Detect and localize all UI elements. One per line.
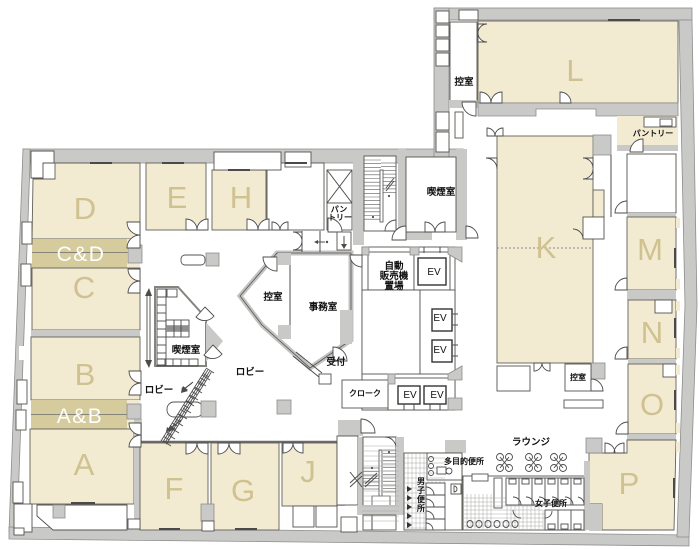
svg-text:M: M [637,232,663,267]
svg-text:H: H [230,180,252,215]
svg-text:ラウンジ: ラウンジ [512,437,551,448]
svg-text:ロビー: ロビー [145,384,174,396]
svg-text:男: 男 [417,477,425,486]
svg-text:A&B: A&B [57,405,104,428]
svg-text:D: D [74,191,96,226]
svg-text:トリー: トリー [328,213,352,222]
svg-text:EV: EV [433,345,447,356]
svg-text:EV: EV [403,390,417,401]
svg-text:控室: 控室 [263,291,283,303]
svg-text:所: 所 [416,503,425,513]
svg-text:EV: EV [430,390,444,401]
svg-text:控室: 控室 [570,372,586,382]
svg-text:パントリー: パントリー [633,128,673,138]
svg-text:J: J [300,454,316,489]
svg-text:喫煙室: 喫煙室 [427,186,456,198]
svg-text:置場: 置場 [384,280,404,292]
svg-text:C&D: C&D [57,243,106,266]
svg-text:多目的便所: 多目的便所 [444,456,484,466]
svg-text:B: B [75,357,96,392]
svg-text:N: N [641,315,663,350]
svg-text:クローク: クローク [349,388,381,398]
svg-text:控室: 控室 [454,76,474,88]
svg-text:F: F [165,471,184,506]
svg-text:E: E [167,180,188,215]
svg-text:EV: EV [433,313,447,324]
svg-text:K: K [536,230,557,265]
svg-text:C: C [73,270,95,305]
svg-text:事務室: 事務室 [309,301,338,313]
svg-text:受付: 受付 [326,356,346,368]
svg-text:L: L [566,53,583,88]
svg-text:O: O [640,387,664,422]
svg-text:子: 子 [417,486,425,495]
svg-text:EV: EV [427,267,441,278]
svg-text:P: P [619,466,640,501]
svg-text:女子便所: 女子便所 [535,498,567,508]
svg-text:便: 便 [417,494,426,504]
svg-text:ロビー: ロビー [236,366,265,378]
svg-text:A: A [74,447,95,482]
svg-text:G: G [231,473,255,508]
svg-text:喫煙室: 喫煙室 [172,344,201,356]
